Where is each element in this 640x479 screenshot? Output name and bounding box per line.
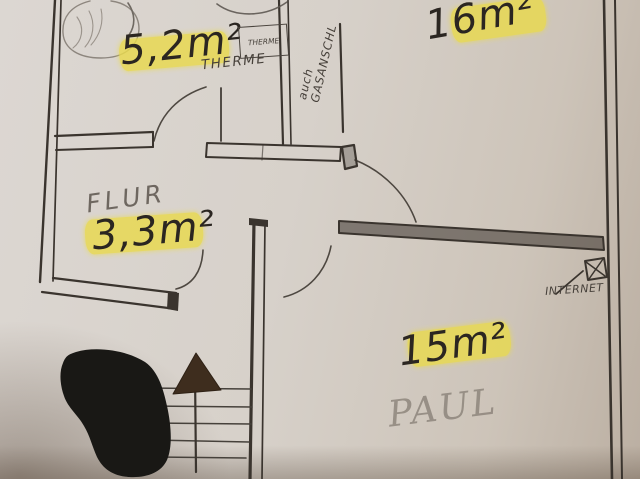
door-arc-room15 bbox=[284, 246, 331, 297]
door-arc-room16 bbox=[355, 160, 416, 222]
direction-arrow-icon bbox=[173, 353, 221, 394]
wall-center-vertical bbox=[249, 218, 268, 479]
wall-left-outer bbox=[40, 0, 61, 282]
redaction-blob bbox=[60, 349, 170, 477]
therme-box-label: THERME bbox=[248, 36, 280, 47]
floorplan-photo: 5,2m² 16m² FLUR 3,3m² 15m² PAUL THERME T… bbox=[0, 0, 640, 479]
wall-room16-bottom bbox=[339, 221, 604, 250]
door-arc-hallway bbox=[176, 250, 203, 289]
door-arc-top bbox=[217, 2, 287, 14]
wall-bottom-left bbox=[42, 278, 179, 311]
door-arc-bathroom bbox=[154, 87, 206, 141]
wall-right-outer bbox=[604, 0, 622, 479]
